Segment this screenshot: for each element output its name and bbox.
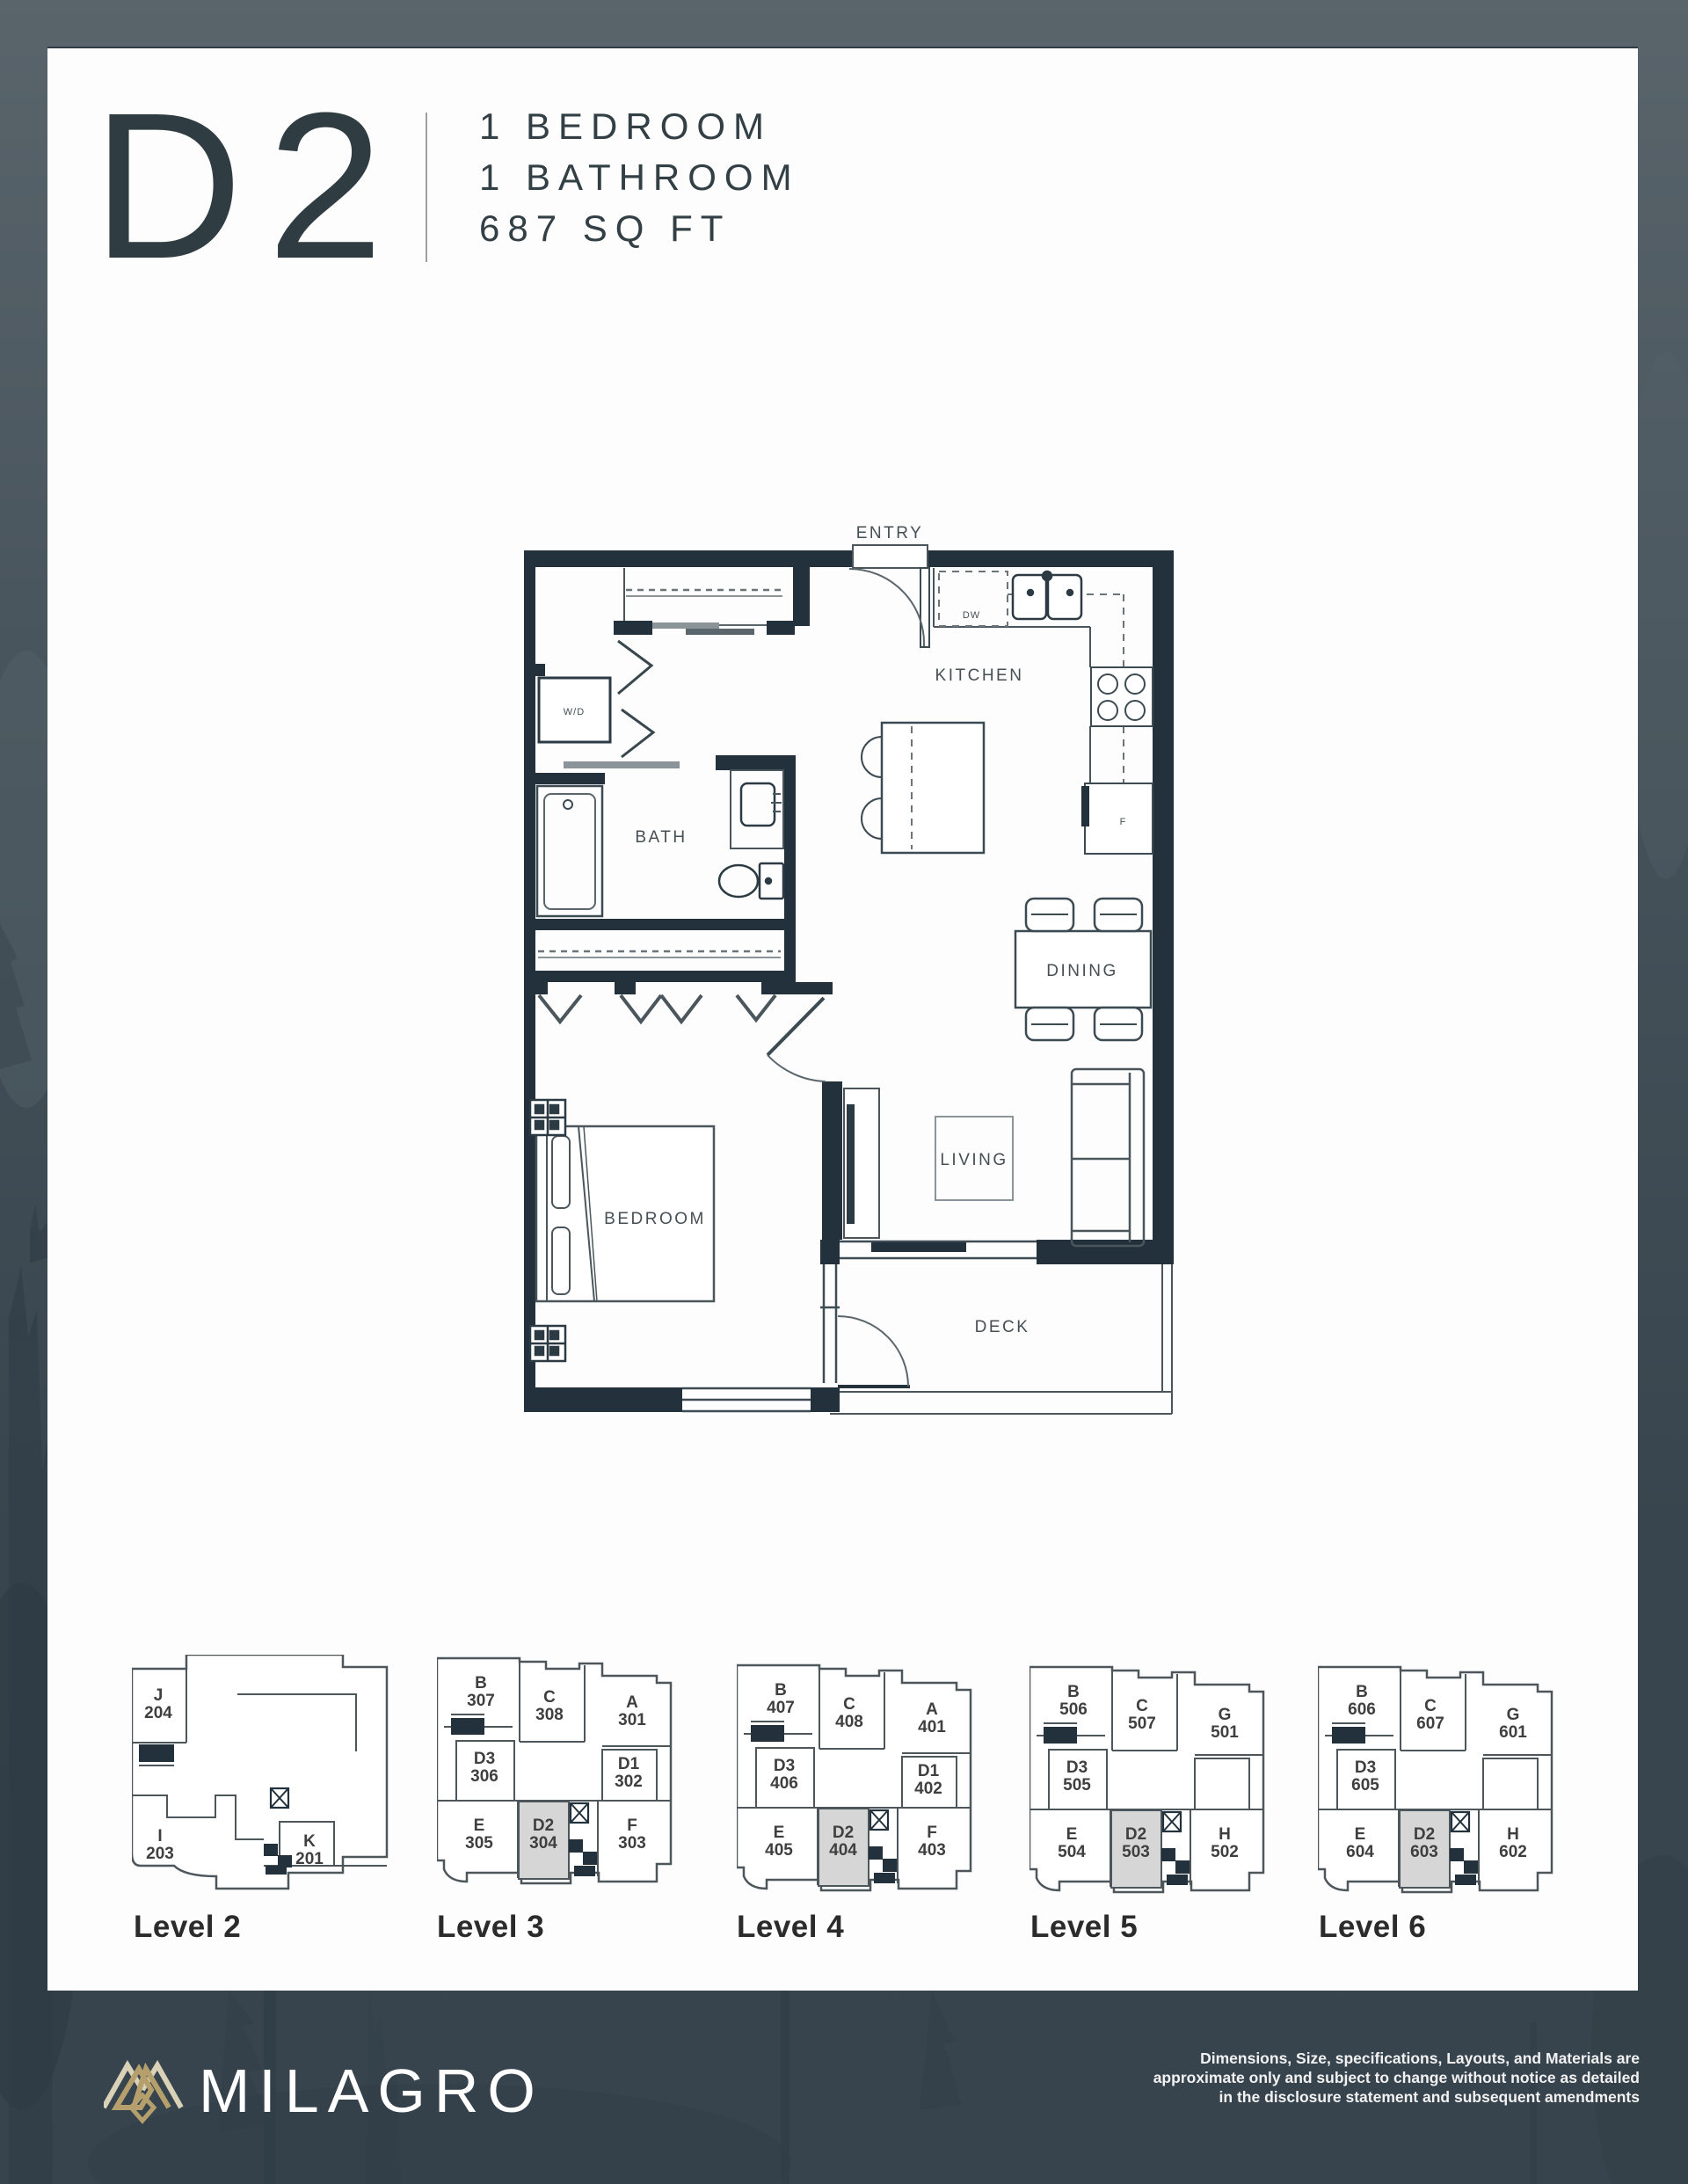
svg-text:403: 403 [918,1841,946,1860]
svg-text:401: 401 [918,1718,946,1736]
svg-text:H: H [1219,1825,1231,1844]
svg-text:603: 603 [1410,1843,1438,1861]
svg-text:203: 203 [146,1845,174,1863]
svg-text:DW: DW [963,610,980,621]
svg-text:KITCHEN: KITCHEN [935,666,1024,685]
svg-text:303: 303 [618,1834,646,1853]
svg-text:D1: D1 [618,1755,640,1773]
svg-text:304: 304 [529,1834,557,1853]
svg-text:505: 505 [1063,1776,1091,1795]
svg-text:F: F [927,1824,937,1842]
svg-text:302: 302 [615,1773,643,1791]
svg-text:I: I [157,1827,162,1845]
svg-text:D3: D3 [774,1757,795,1775]
svg-text:C: C [543,1688,556,1707]
svg-text:B: B [475,1674,487,1693]
svg-text:602: 602 [1499,1843,1527,1861]
svg-text:BATH: BATH [635,828,687,847]
svg-text:LIVING: LIVING [940,1151,1008,1169]
svg-text:D3: D3 [1066,1758,1088,1777]
svg-text:C: C [1424,1697,1437,1715]
svg-text:K: K [303,1832,316,1851]
svg-text:C: C [843,1695,855,1714]
svg-text:307: 307 [467,1692,495,1710]
svg-text:D2: D2 [1414,1825,1435,1844]
svg-text:D3: D3 [474,1750,495,1768]
svg-text:E: E [474,1816,485,1835]
svg-text:404: 404 [829,1841,857,1860]
svg-text:D3: D3 [1355,1758,1376,1777]
svg-text:E: E [774,1824,785,1842]
svg-text:E: E [1355,1825,1366,1844]
svg-text:DECK: DECK [975,1318,1030,1336]
svg-text:406: 406 [770,1774,798,1793]
svg-text:501: 501 [1211,1723,1239,1742]
svg-text:A: A [626,1693,638,1712]
svg-text:408: 408 [835,1713,863,1731]
svg-text:605: 605 [1351,1776,1379,1795]
svg-text:601: 601 [1499,1723,1527,1742]
svg-text:D2: D2 [533,1816,554,1835]
svg-text:604: 604 [1346,1843,1374,1861]
svg-text:504: 504 [1058,1843,1086,1861]
svg-text:G: G [1219,1706,1232,1724]
svg-text:308: 308 [535,1706,564,1724]
svg-text:507: 507 [1128,1714,1156,1733]
svg-text:B: B [775,1681,787,1700]
svg-text:C: C [1136,1697,1148,1715]
svg-text:D1: D1 [918,1762,940,1780]
svg-text:MILAGRO: MILAGRO [199,2057,544,2125]
svg-text:D2: D2 [833,1824,854,1842]
svg-text:A: A [926,1700,938,1719]
svg-text:F: F [1120,817,1126,827]
svg-text:BEDROOM: BEDROOM [604,1210,706,1228]
svg-text:607: 607 [1416,1714,1444,1733]
svg-text:306: 306 [470,1767,498,1786]
svg-text:F: F [627,1816,637,1835]
svg-text:204: 204 [144,1704,172,1722]
svg-text:201: 201 [295,1850,324,1868]
svg-text:E: E [1066,1825,1078,1844]
svg-text:305: 305 [465,1834,493,1853]
svg-text:502: 502 [1211,1843,1239,1861]
svg-text:DINING: DINING [1046,962,1118,980]
svg-text:301: 301 [618,1711,646,1729]
svg-text:606: 606 [1348,1700,1376,1719]
svg-text:D2: D2 [1125,1825,1146,1844]
svg-text:407: 407 [767,1699,795,1717]
svg-text:ENTRY: ENTRY [856,524,924,542]
svg-text:J: J [154,1686,164,1705]
svg-text:405: 405 [765,1841,793,1860]
svg-text:402: 402 [914,1780,942,1798]
svg-text:B: B [1356,1683,1368,1701]
svg-text:G: G [1507,1706,1520,1724]
svg-text:W/D: W/D [564,707,585,717]
svg-text:B: B [1067,1683,1080,1701]
svg-text:506: 506 [1059,1700,1088,1719]
svg-text:H: H [1507,1825,1519,1844]
svg-text:503: 503 [1122,1843,1150,1861]
